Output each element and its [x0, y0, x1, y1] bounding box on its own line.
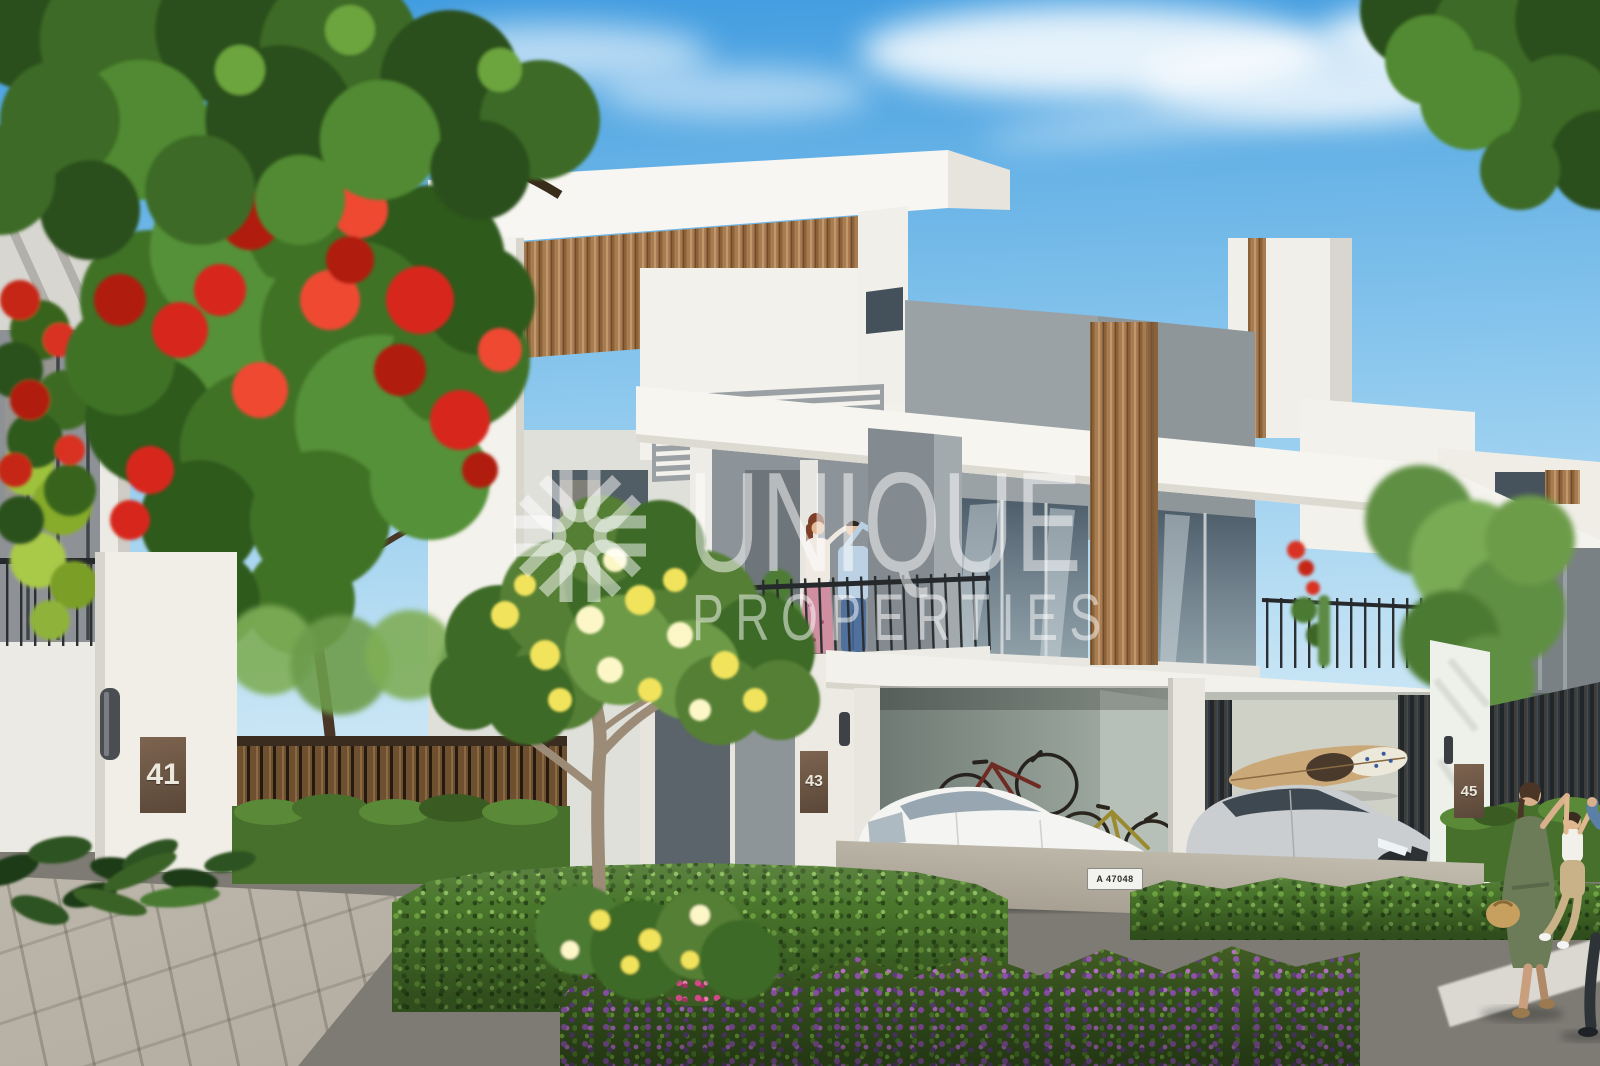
family-group: [1480, 782, 1600, 1042]
watermark-brand-name: UNIQUE: [688, 452, 1083, 594]
unique-properties-logo-icon: [498, 450, 662, 622]
foreground-leaves: [0, 833, 257, 931]
watermark-brand-subtitle: PROPERTIES: [692, 584, 1113, 650]
woman-green-dress: [1486, 782, 1567, 1018]
villa-render-image: 41 43 45 A 47048: [0, 0, 1600, 1066]
